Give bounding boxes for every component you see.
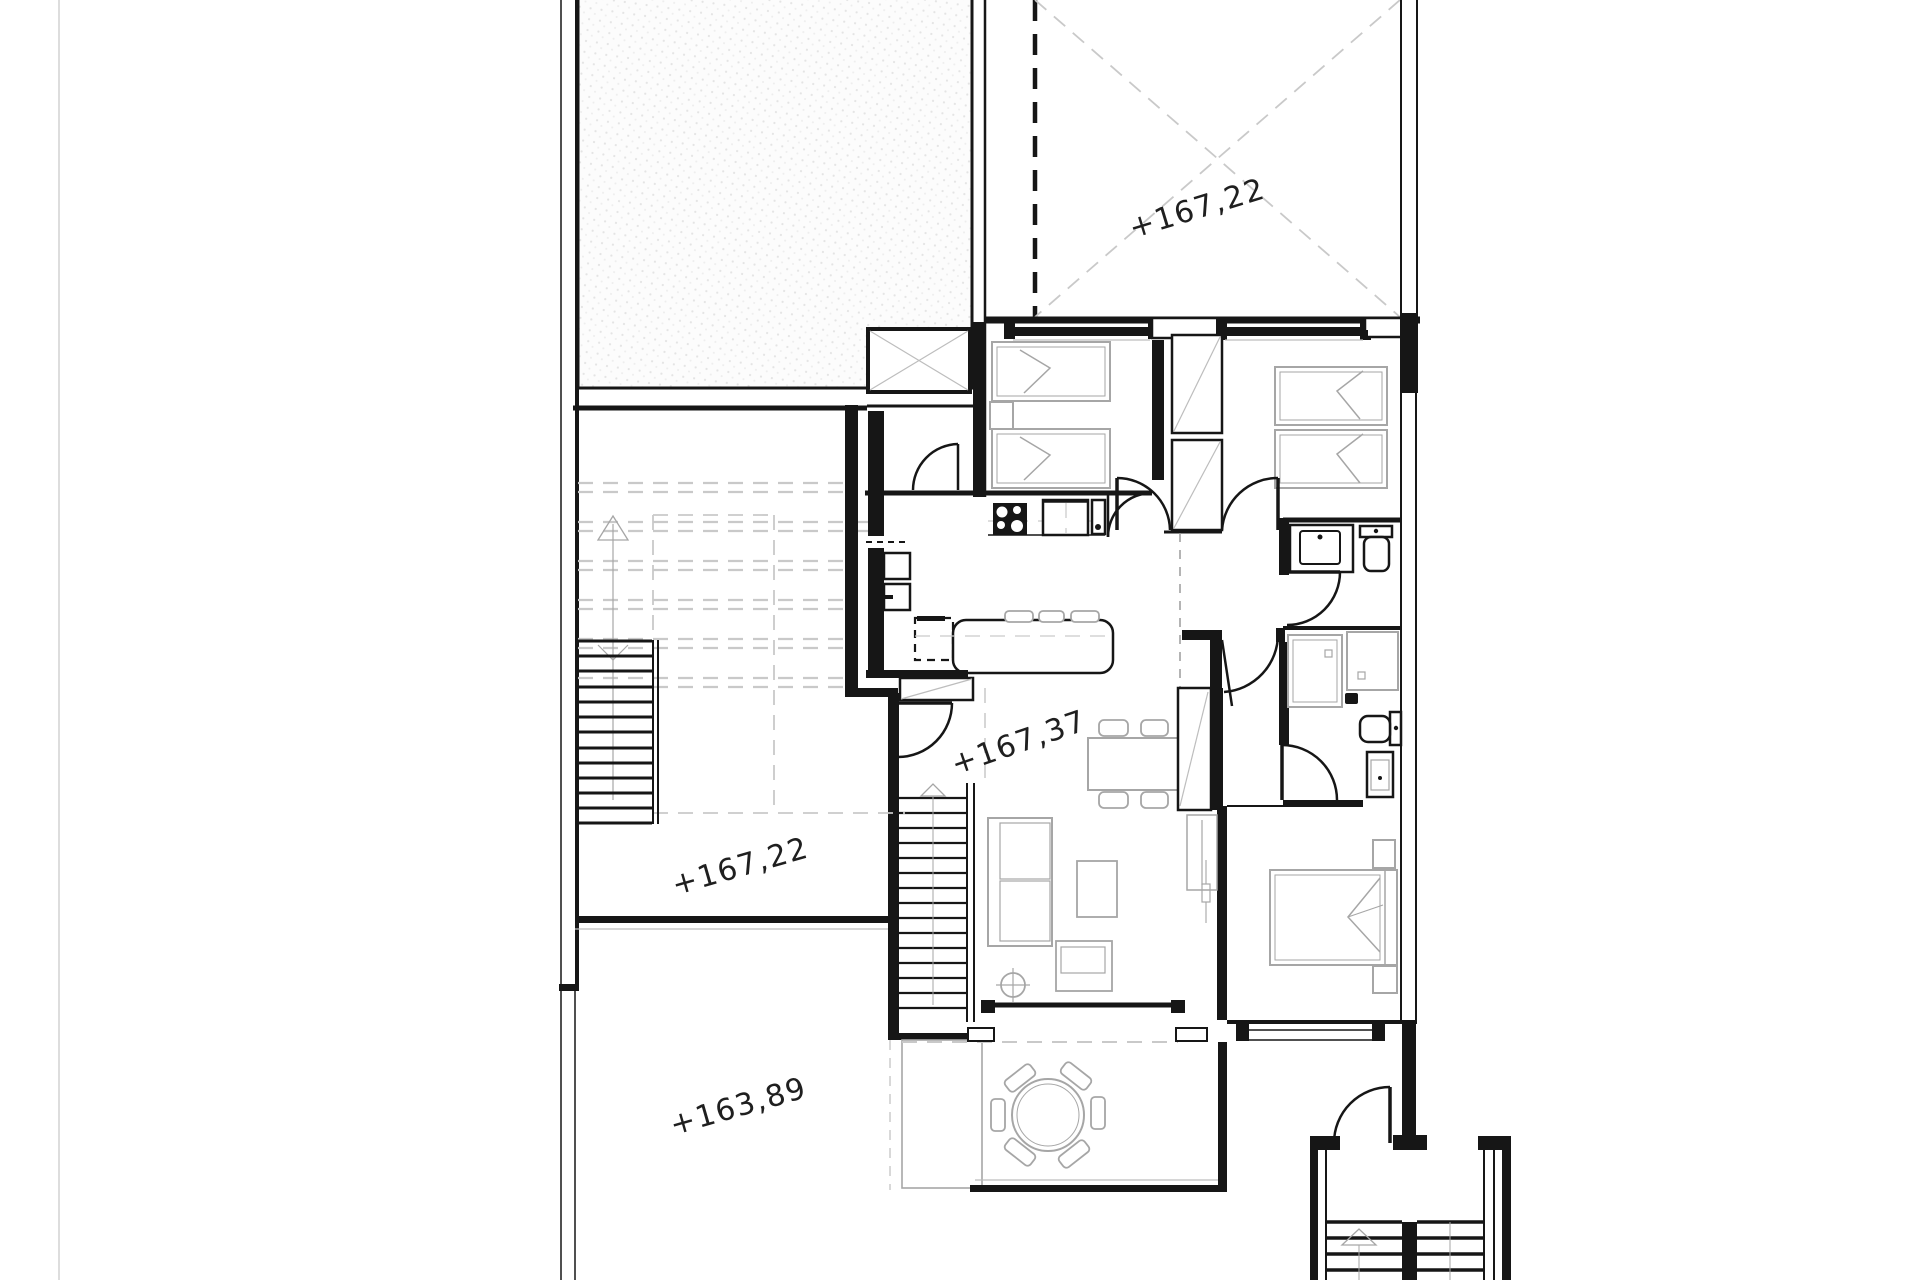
bed-single-4 — [1275, 430, 1387, 488]
stool — [1071, 611, 1099, 622]
chair — [1099, 792, 1128, 808]
stool — [1005, 611, 1033, 622]
dining-table — [1088, 720, 1178, 808]
shaft-box — [868, 329, 970, 392]
sink-vanity — [1290, 525, 1353, 572]
counter-module — [1043, 500, 1088, 535]
kitchen-island — [915, 611, 1113, 673]
entry-door — [1334, 1087, 1390, 1143]
bedroom-3-door — [1222, 634, 1278, 706]
floor-lamp — [996, 968, 1030, 1002]
elevation-label-roof-terrace: +167,22 — [1125, 172, 1270, 247]
chair — [1141, 792, 1168, 808]
stool — [1039, 611, 1064, 622]
chair — [1141, 720, 1168, 736]
bedroom-2 — [1222, 367, 1387, 530]
oven — [884, 553, 910, 579]
nightstand-1 — [990, 402, 1013, 429]
roof-hatch-area — [573, 0, 985, 497]
coffee-table — [1077, 861, 1117, 917]
nightstand-2 — [1373, 840, 1395, 868]
stairs-internal — [888, 678, 992, 1040]
bedroom-1-door — [1117, 478, 1170, 530]
floor-plan-page: +167,22 — [0, 0, 1920, 1280]
round-table — [991, 1061, 1105, 1170]
under-stair-store — [902, 1040, 982, 1188]
site-boundary — [59, 0, 579, 1280]
shower-tray-1 — [1288, 635, 1342, 707]
roof-opening-outline — [653, 515, 905, 813]
bed-single-2 — [992, 429, 1110, 488]
tall-cupboard — [1178, 688, 1223, 810]
nightstand-3 — [1373, 966, 1397, 993]
stairs-garden — [577, 640, 658, 824]
shower-tray-2 — [1347, 632, 1398, 690]
wc-door — [1282, 745, 1337, 800]
terrace-side-wall — [845, 405, 858, 695]
wc-room — [1282, 712, 1401, 807]
kitchen-door — [1108, 493, 1152, 537]
wardrobes — [1164, 335, 1222, 532]
stair-exit-step — [900, 678, 973, 700]
lower-terrace: +163,89 — [666, 1028, 1227, 1192]
sofa — [988, 818, 1052, 946]
cooktop — [993, 503, 1027, 535]
terrace-door — [898, 703, 952, 757]
toilet-1 — [1360, 526, 1392, 571]
bed-single-1 — [992, 342, 1110, 401]
roof-terrace: +167,22 — [1035, 0, 1417, 317]
bed-double — [1270, 870, 1397, 965]
elevation-label-upper-terrace: +167,22 — [668, 831, 813, 903]
stair-direction-arrow — [921, 784, 945, 796]
bathroom-1 — [1279, 518, 1400, 628]
toilet-2 — [1360, 712, 1401, 745]
elevation-label-lower-terrace: +163,89 — [666, 1071, 811, 1143]
bed-single-3 — [1275, 367, 1387, 425]
floor-plan-drawing: +167,22 — [0, 0, 1920, 1280]
door-handle — [1202, 884, 1210, 902]
living-room-window — [981, 1000, 1185, 1013]
bedroom-2-door — [1222, 478, 1278, 530]
elevation-label-living: +167,37 — [947, 704, 1091, 783]
floor-drain — [1345, 693, 1358, 704]
chair — [1099, 720, 1128, 736]
upper-terrace: +167,22 — [575, 405, 905, 929]
bedroom-3 — [1202, 806, 1417, 1041]
armchair — [1056, 941, 1112, 991]
cabinet — [1187, 815, 1217, 890]
sink-2 — [1367, 752, 1393, 797]
window-bedroom-1 — [1013, 327, 1150, 336]
terrace-parapet — [575, 916, 888, 923]
window-bedroom-2 — [1225, 327, 1363, 336]
garden-stair-arrow — [598, 516, 628, 800]
kitchen-sink — [1092, 500, 1105, 534]
bedroom-3-window — [1227, 1022, 1417, 1041]
bathroom-1-door — [1287, 572, 1340, 625]
